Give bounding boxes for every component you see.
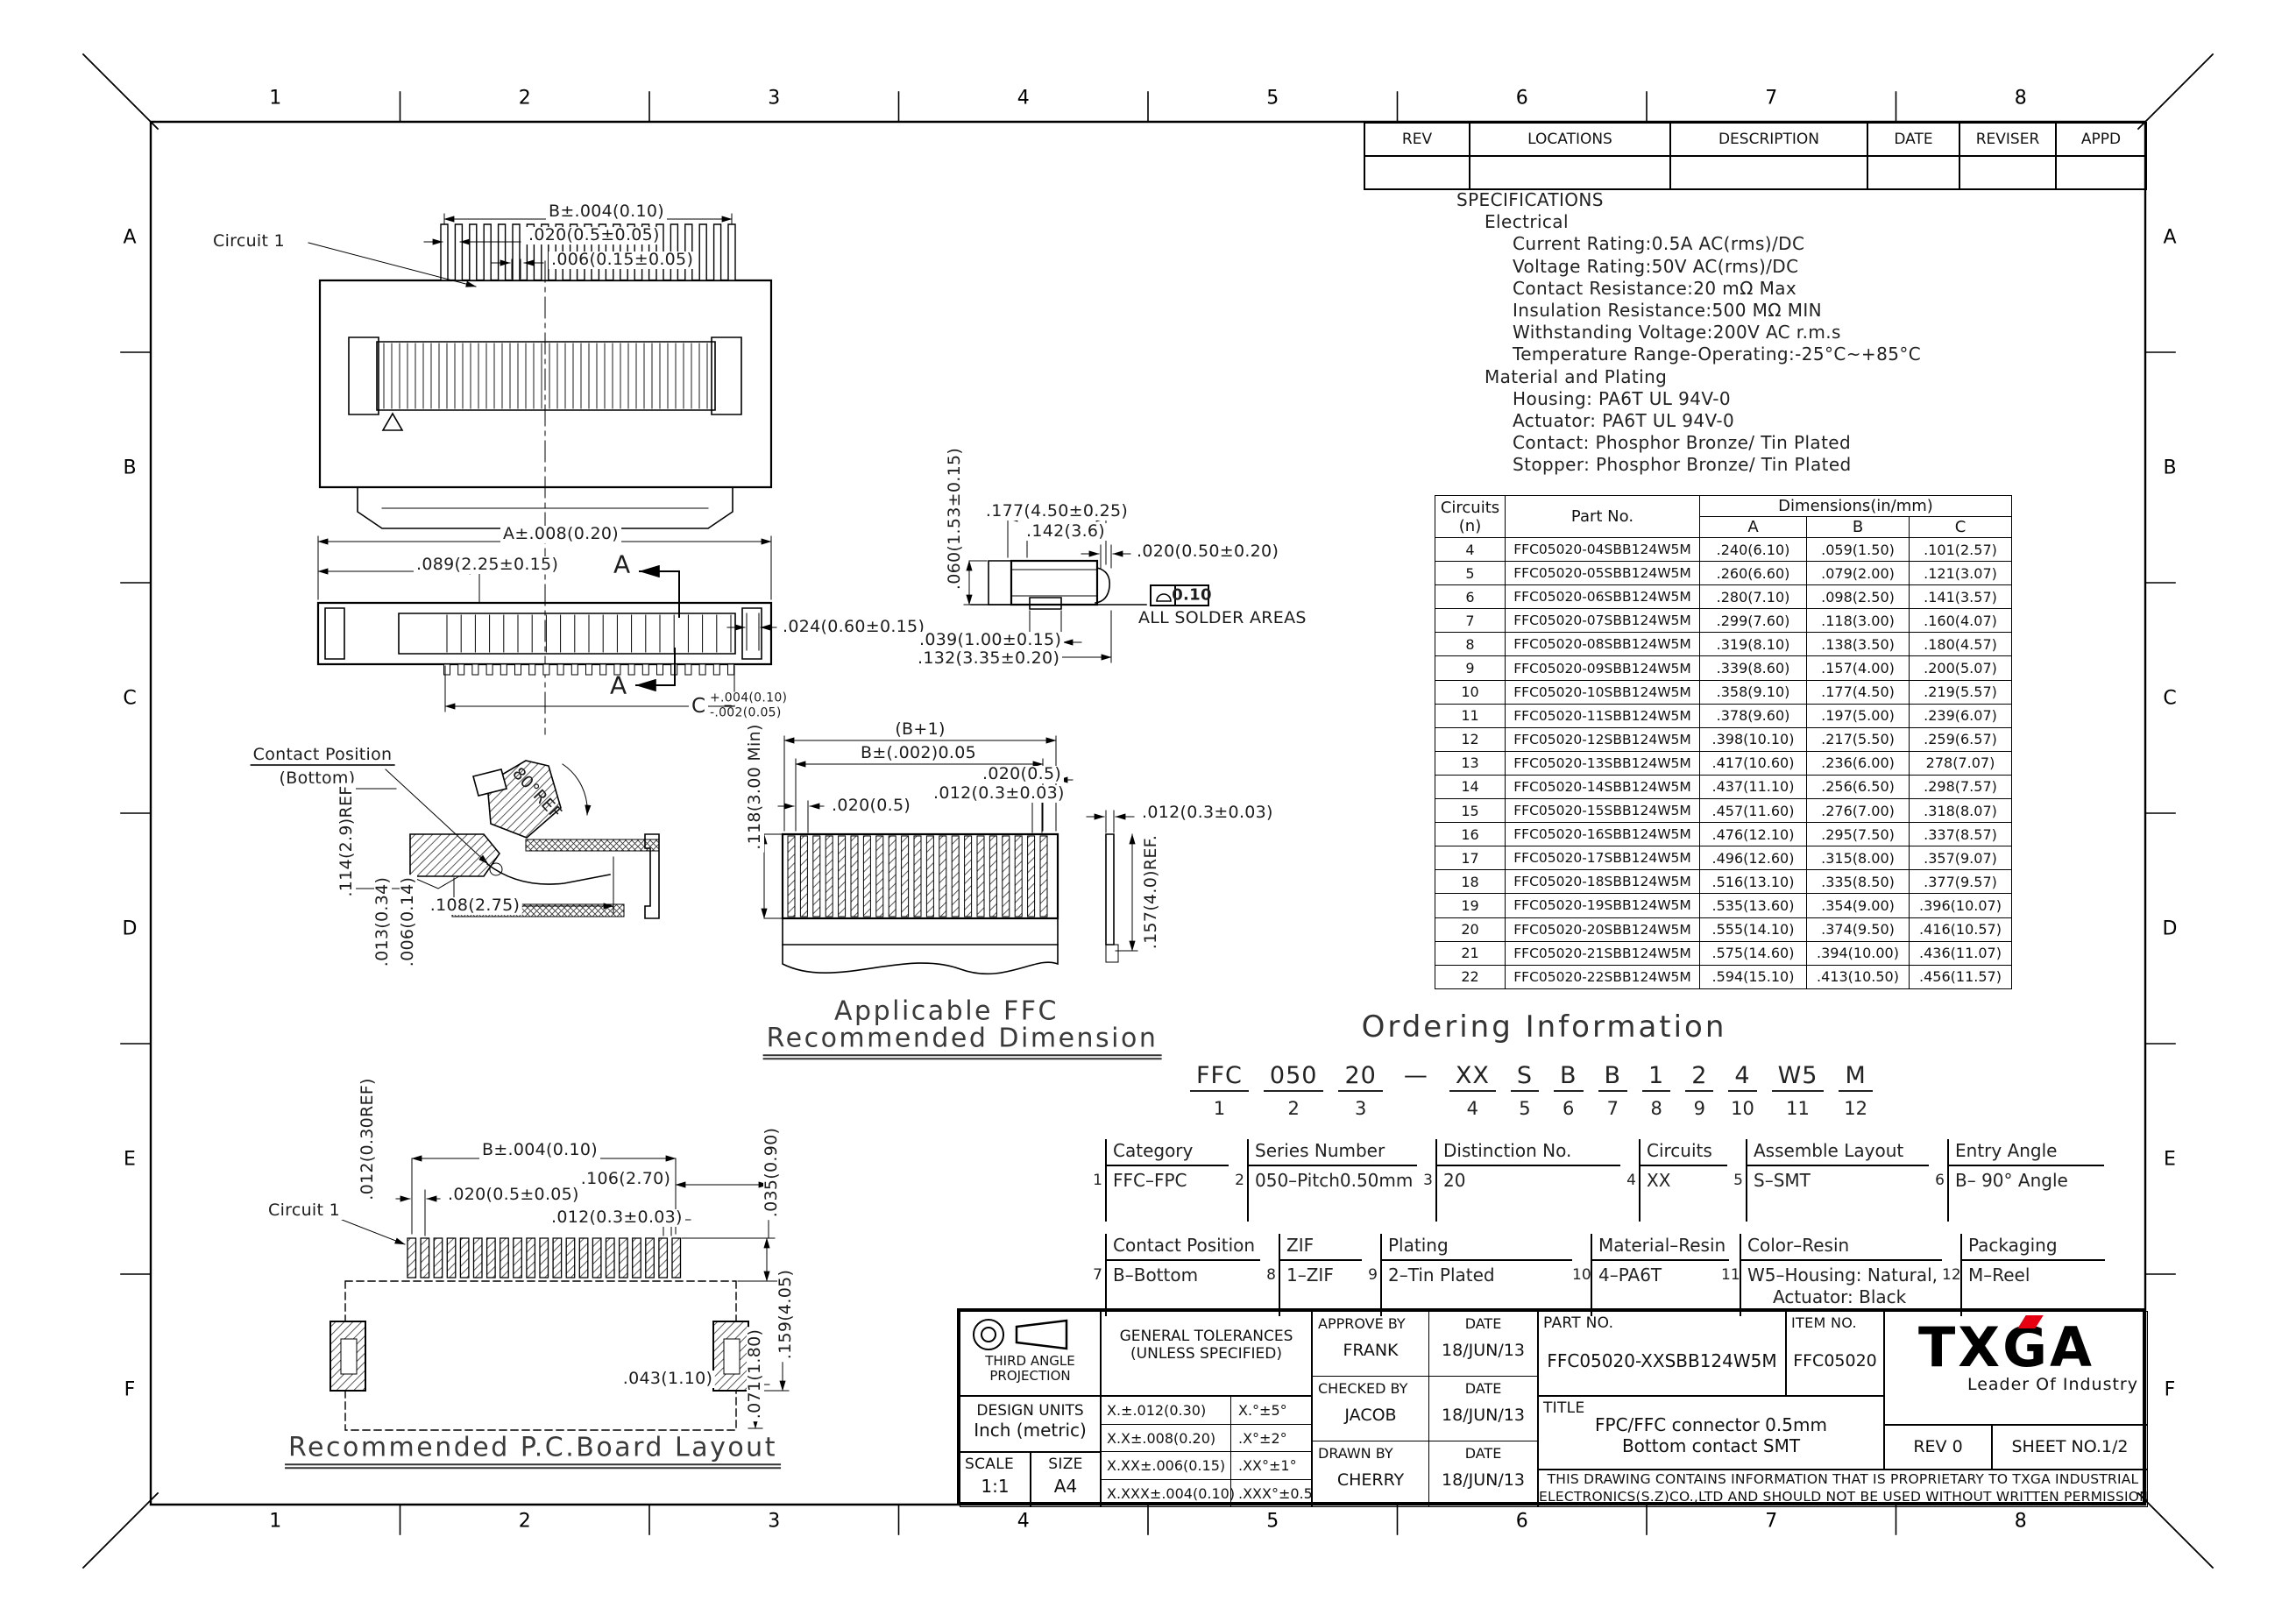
tolerances-title-1: GENERAL TOLERANCES [1102,1328,1311,1345]
grid-row-right-B: B [2163,457,2176,478]
col-header-dimensions: Dimensions(in/mm) [1700,496,2012,517]
grid-col-top-4: 4 [1017,88,1030,110]
dim-topview-pitch: .020(0.5±0.05) [526,227,663,244]
circuits-cell: .416(10.57) [1910,917,2012,941]
circuits-cell: FFC05020-04SBB124W5M [1506,538,1700,562]
dim-ffc-exposed-length: .118(3.00 Min) [747,721,764,852]
circuits-cell: .456(11.57) [1910,965,2012,988]
dim-ffc-thickness: .012(0.3±0.03) [1139,804,1276,822]
circuits-table-row: 11FFC05020-11SBB124W5M.378(9.60).197(5.0… [1435,704,2012,727]
ordering-legend-item-5: 5Assemble LayoutS–SMT [1727,1139,1929,1222]
ordering-code-segment: S5 [1511,1062,1539,1119]
circuits-cell: 10 [1435,680,1506,704]
circuits-cell: FFC05020-20SBB124W5M [1506,917,1700,941]
grid-col-top-1: 1 [269,88,281,110]
circuits-cell: .098(2.50) [1807,585,1910,609]
spec-line: SPECIFICATIONS [1456,189,2017,211]
ordering-legend-item-9: 9Plating2–Tin Plated [1362,1234,1572,1316]
circuits-cell: .394(10.00) [1807,941,1910,965]
dim-ffc-trace-width: .012(0.3±0.03) [931,785,1067,803]
proprietary-line-1: THIS DRAWING CONTAINS INFORMATION THAT I… [1539,1470,2147,1488]
circuits-table-row: 6FFC05020-06SBB124W5M.280(7.10).098(2.50… [1435,585,2012,609]
approvals-cell: APPROVE BYFRANKDATE18/JUN/13CHECKED BYJA… [1312,1311,1538,1507]
circuits-cell: .239(6.07) [1910,704,2012,727]
ordering-code-segment: 0502 [1264,1062,1324,1119]
grid-col-top-3: 3 [768,88,780,110]
circuits-cell: FFC05020-12SBB124W5M [1506,727,1700,751]
circuits-cell: 19 [1435,894,1506,917]
rev-col-reviser: REVISER [1959,123,2056,156]
ordering-code-segment: XX4 [1449,1062,1496,1119]
spec-line: Insulation Resistance:500 MΩ MIN [1456,300,2017,322]
title-pcb-layout: Recommended P.C.Board Layout [285,1434,781,1469]
grid-col-top-7: 7 [1765,88,1777,110]
ordering-legend-item-10: 10Material–Resin4–PA6T [1572,1234,1721,1316]
circuits-table-row: 18FFC05020-18SBB124W5M.516(13.10).335(8.… [1435,870,2012,894]
dim-sideview-height: .060(1.53±0.15) [946,445,964,592]
rev-col-locations: LOCATIONS [1470,123,1670,156]
circuits-cell: .337(8.57) [1910,823,2012,846]
grid-col-bottom-3: 3 [768,1511,780,1533]
circuits-cell: .259(6.57) [1910,727,2012,751]
circuits-cell: .298(7.57) [1910,775,2012,798]
ordering-code-segment: B7 [1598,1062,1628,1119]
part-no-cell: PART NO. FFC05020-XXSBB124W5M [1538,1311,1786,1396]
circuits-cell: .396(10.07) [1910,894,2012,917]
circuits-cell: .141(3.57) [1910,585,2012,609]
circuits-cell: .276(7.00) [1807,799,1910,823]
circuits-cell: .315(8.00) [1807,846,1910,870]
circuits-cell: FFC05020-15SBB124W5M [1506,799,1700,823]
col-header-part-no: Part No. [1506,496,1700,538]
approval-row-cherry: DRAWN BYCHERRYDATE18/JUN/13 [1313,1441,1537,1506]
spec-line: Contact Resistance:20 mΩ Max [1456,278,2017,300]
dim-sideview-tail: .020(0.50±0.20) [1134,543,1281,561]
grid-row-left-E: E [124,1148,136,1170]
circuits-cell: .319(8.10) [1700,633,1807,656]
rev-cell: REV 0 [1884,1425,1992,1470]
grid-row-right-D: D [2163,917,2178,939]
dim-ffc-overall: (B+1) [892,721,947,739]
ordering-legend-row-2: 7Contact PositionB–Bottom8ZIF1–ZIF9Plati… [1087,1234,2105,1316]
circuits-table-row: 13FFC05020-13SBB124W5M.417(10.60).236(6.… [1435,751,2012,775]
design-units-value: Inch (metric) [960,1420,1100,1441]
circuits-table-row: 14FFC05020-14SBB124W5M.437(11.10).256(6.… [1435,775,2012,798]
dim-topview-span-b: B±.004(0.10) [546,203,667,221]
dim-ffc-pitch: .020(0.5) [829,797,913,815]
logo-cell: TXGA Leader Of Industry [1884,1311,2148,1425]
label-section-a-top: A [613,551,630,577]
general-tolerances-cell: GENERAL TOLERANCES (UNLESS SPECIFIED) [1101,1311,1312,1396]
circuits-cell: .295(7.50) [1807,823,1910,846]
grid-row-right-A: A [2163,226,2176,248]
rev-col-rev: REV [1364,123,1470,156]
revision-table-empty-row [1364,156,2146,189]
approval-row-frank: APPROVE BYFRANKDATE18/JUN/13 [1313,1312,1537,1377]
circuits-cell: .299(7.60) [1700,609,1807,633]
circuits-table-row: 7FFC05020-07SBB124W5M.299(7.60).118(3.00… [1435,609,2012,633]
circuits-cell: FFC05020-05SBB124W5M [1506,562,1700,585]
dim-ffc-stiffener-ref: .157(4.0)REF. [1143,832,1160,952]
dim-contact-006: .006(0.14) [400,875,417,969]
ordering-code-segment: B6 [1554,1062,1584,1119]
grid-col-bottom-7: 7 [1765,1511,1777,1533]
dim-frontview-pin-length: .024(0.60±0.15) [780,619,927,636]
circuits-cell: FFC05020-11SBB124W5M [1506,704,1700,727]
circuits-cell: 14 [1435,775,1506,798]
grid-col-bottom-4: 4 [1017,1511,1030,1533]
grid-col-bottom-5: 5 [1266,1511,1279,1533]
projection-cone-icon [1015,1319,1069,1350]
design-units-cell: DESIGN UNITS Inch (metric) [960,1396,1101,1452]
size-value: A4 [1031,1476,1100,1497]
grid-row-left-B: B [123,457,136,478]
scale-value: 1:1 [960,1476,1030,1497]
spec-line: Voltage Rating:50V AC(rms)/DC [1456,256,2017,278]
circuits-table-row: 5FFC05020-05SBB124W5M.260(6.60).079(2.00… [1435,562,2012,585]
sheet-no-cell: SHEET NO.1/2 [1992,1425,2148,1470]
grid-row-left-A: A [123,226,136,248]
view-ffc [783,834,1118,974]
specifications-block: SPECIFICATIONSElectricalCurrent Rating:0… [1456,189,2017,477]
dim-pcb-106: .106(2.70) [578,1171,673,1188]
label-topview-circuit-1: Circuit 1 [210,233,287,251]
circuits-cell: .417(10.60) [1700,751,1807,775]
dim-pcb-071: .071(1.80) [747,1327,764,1421]
dim-frontview-c-tol-plus: +.004(0.10) [707,692,790,705]
ordering-code-segment: 29 [1685,1062,1713,1119]
rev-col-description: DESCRIPTION [1670,123,1867,156]
circuits-cell: FFC05020-06SBB124W5M [1506,585,1700,609]
circuits-cell: .138(3.50) [1807,633,1910,656]
circuits-cell: FFC05020-22SBB124W5M [1506,965,1700,988]
ordering-code-segment: 410 [1728,1062,1756,1119]
txga-logo: TXGA [1918,1321,2147,1375]
circuits-cell: .157(4.00) [1807,656,1910,680]
sheet-no-value: SHEET NO.1/2 [1993,1437,2147,1456]
circuits-cell: .240(6.10) [1700,538,1807,562]
circuits-cell: 5 [1435,562,1506,585]
spec-line: Current Rating:0.5A AC(rms)/DC [1456,233,2017,255]
view-pcb [330,1238,748,1430]
grid-row-right-F: F [2165,1378,2176,1400]
circuits-table-row: 4FFC05020-04SBB124W5M.240(6.10).059(1.50… [1435,538,2012,562]
circuits-cell: .200(5.07) [1910,656,2012,680]
circuits-cell: 9 [1435,656,1506,680]
ordering-code-segment: — [1398,1062,1435,1096]
grid-col-bottom-2: 2 [519,1511,531,1533]
circuits-cell: .457(11.60) [1700,799,1807,823]
circuits-cell: .575(14.60) [1700,941,1807,965]
tolerance-row: X.XXX±.004(0.10).XXX°±0.5° [1102,1480,1311,1507]
col-header-circuits: Circuits (n) [1435,496,1506,538]
circuits-cell: .217(5.50) [1807,727,1910,751]
approval-row-jacob: CHECKED BYJACOBDATE18/JUN/13 [1313,1377,1537,1441]
dim-sub-col-a: A [1700,517,1807,538]
circuits-cell: .476(12.10) [1700,823,1807,846]
grid-col-bottom-6: 6 [1516,1511,1528,1533]
grid-col-top-5: 5 [1266,88,1279,110]
dim-sideview-142: .142(3.6) [1024,523,1108,541]
spec-line: Temperature Range-Operating:-25°C~+85°C [1456,344,2017,365]
circuits-cell: .535(13.60) [1700,894,1807,917]
ordering-legend-item-2: 2Series Number050–Pitch0.50mm [1229,1139,1417,1222]
circuits-cell: .079(2.00) [1807,562,1910,585]
grid-col-bottom-8: 8 [2015,1511,2027,1533]
ordering-code-segment: 203 [1338,1062,1382,1119]
tolerance-row: X.±.012(0.30)X.°±5° [1102,1397,1311,1425]
title-block: THIRD ANGLE PROJECTION DESIGN UNITS Inch… [957,1308,2145,1505]
circuits-cell: 22 [1435,965,1506,988]
third-angle-projection-cell: THIRD ANGLE PROJECTION [960,1311,1101,1396]
grid-row-left-D: D [123,917,138,939]
engineering-drawing-sheet: { "sheet": { "grid_columns": ["1","2","3… [0,0,2296,1622]
ordering-legend-item-1: 1CategoryFFC–FPC [1087,1139,1229,1222]
item-no-cell: ITEM NO. FFC05020 [1786,1311,1884,1396]
dim-sub-col-b: B [1807,517,1910,538]
circuits-table-row: 22FFC05020-22SBB124W5M.594(15.10).413(10… [1435,965,2012,988]
rev-empty-cell [1670,156,1867,189]
circuits-cell: 278(7.07) [1910,751,2012,775]
rev-empty-cell [1470,156,1670,189]
label-contact-position: Contact Position [251,747,395,766]
ordering-legend-item-11: 11Color–ResinW5–Housing: Natural,Actuato… [1721,1234,1942,1316]
dim-contact-108: .108(2.75) [428,897,522,915]
circuits-cell: .398(10.10) [1700,727,1807,751]
circuits-cell: FFC05020-09SBB124W5M [1506,656,1700,680]
circuits-dimension-table: Circuits (n) Part No. Dimensions(in/mm) … [1435,495,2012,989]
circuits-cell: .354(9.00) [1807,894,1910,917]
revision-table: REVLOCATIONSDESCRIPTIONDATEREVISERAPPD [1364,122,2147,190]
size-label: SIZE [1031,1453,1100,1476]
dim-contact-013: .013(0.34) [374,875,392,969]
rev-empty-cell [2056,156,2146,189]
circuits-cell: .177(4.50) [1807,680,1910,704]
ordering-legend-item-4: 4CircuitsXX [1620,1139,1727,1222]
circuits-cell: .280(7.10) [1700,585,1807,609]
grid-col-top-8: 8 [2015,88,2027,110]
circuits-cell: .555(14.10) [1700,917,1807,941]
dim-frontview-end-width: .089(2.25±0.15) [414,556,561,574]
scale-cell: SCALE 1:1 [960,1452,1031,1507]
ordering-legend-row-1: 1CategoryFFC–FPC2Series Number050–Pitch0… [1087,1139,2104,1222]
drawing-title-line-2: Bottom contact SMT [1539,1435,1883,1456]
ordering-legend-item-3: 3Distinction No.20 [1417,1139,1620,1222]
circuits-cell: .121(3.07) [1910,562,2012,585]
circuits-cell: .339(8.60) [1700,656,1807,680]
size-cell: SIZE A4 [1031,1452,1101,1507]
dim-pcb-span-b: B±.004(0.10) [479,1142,600,1159]
circuits-cell: FFC05020-13SBB124W5M [1506,751,1700,775]
dim-pcb-offset-ref: .012(0.30REF) [359,1075,377,1202]
spec-line: Contact: Phosphor Bronze/ Tin Plated [1456,432,2017,454]
circuits-cell: .118(3.00) [1807,609,1910,633]
circuits-cell: .357(9.07) [1910,846,2012,870]
circuits-table-row: 9FFC05020-09SBB124W5M.339(8.60).157(4.00… [1435,656,2012,680]
spec-line: Withstanding Voltage:200V AC r.m.s [1456,322,2017,344]
circuits-cell: 18 [1435,870,1506,894]
part-no-value: FFC05020-XXSBB124W5M [1539,1350,1785,1371]
ordering-code-segment: W511 [1772,1062,1825,1119]
grid-row-right-E: E [2164,1148,2176,1170]
dim-sub-col-c: C [1910,517,2012,538]
ordering-code: FFC10502203—XX4S5B6B71829410W511M12 [1190,1062,1873,1119]
dim-sideview-base: .132(3.35±0.20) [915,650,1062,668]
circuits-cell: .413(10.50) [1807,965,1910,988]
ordering-legend-item-8: 8ZIF1–ZIF [1260,1234,1362,1316]
ordering-code-segment: 18 [1642,1062,1670,1119]
circuits-cell: .516(13.10) [1700,870,1807,894]
label-section-a-bottom: A [610,672,627,698]
circuits-cell: .059(1.50) [1807,538,1910,562]
dim-sideview-foot: .039(1.00±0.15) [917,632,1064,649]
circuits-cell: .197(5.00) [1807,704,1910,727]
dim-ffc-end-margin: .020(0.5) [980,766,1064,783]
dim-pcb-pitch: .020(0.5±0.05) [445,1186,582,1204]
circuits-cell: 20 [1435,917,1506,941]
scale-label: SCALE [960,1453,1030,1476]
circuits-cell: .436(11.07) [1910,941,2012,965]
dim-frontview-width-a: A±.008(0.20) [500,526,621,543]
circuits-cell: 21 [1435,941,1506,965]
rev-empty-cell [1959,156,2056,189]
dim-sideview-depth: .177(4.50±0.25) [983,503,1130,521]
dim-frontview-c: C [689,696,708,717]
circuits-cell: .236(6.00) [1807,751,1910,775]
circuits-cell: FFC05020-14SBB124W5M [1506,775,1700,798]
circuits-cell: 13 [1435,751,1506,775]
item-no-value: FFC05020 [1787,1351,1883,1371]
dim-topview-pin-width: .006(0.15±0.05) [549,251,696,269]
circuits-cell: FFC05020-07SBB124W5M [1506,609,1700,633]
circuits-cell: 17 [1435,846,1506,870]
label-all-solder-areas: ALL SOLDER AREAS [1136,610,1309,627]
circuits-table-row: 17FFC05020-17SBB124W5M.496(12.60).315(8.… [1435,846,2012,870]
spec-line: Material and Plating [1456,366,2017,388]
rev-empty-cell [1364,156,1470,189]
dim-contact-height-ref: .114(2.9)REF [338,783,356,899]
third-angle-label-1: THIRD ANGLE [960,1354,1100,1369]
title-recommended-dimension: Recommended Dimension [763,1024,1162,1059]
value-flatness-tolerance: 0.10 [1172,588,1212,605]
grid-col-top-6: 6 [1516,88,1528,110]
grid-col-top-2: 2 [519,88,531,110]
spec-line: Actuator: PA6T UL 94V-0 [1456,410,2017,432]
circuits-table-row: 15FFC05020-15SBB124W5M.457(11.60).276(7.… [1435,799,2012,823]
dim-ffc-span-b: B±(.002)0.05 [858,745,979,762]
rev-value: REV 0 [1885,1437,1991,1456]
circuits-cell: FFC05020-17SBB124W5M [1506,846,1700,870]
part-no-label: PART NO. [1539,1312,1785,1335]
circuits-cell: .260(6.60) [1700,562,1807,585]
circuits-cell: FFC05020-19SBB124W5M [1506,894,1700,917]
circuits-cell: .101(2.57) [1910,538,2012,562]
circuits-cell: .219(5.57) [1910,680,2012,704]
circuits-table-row: 19FFC05020-19SBB124W5M.535(13.60).354(9.… [1435,894,2012,917]
circuits-table-row: 8FFC05020-08SBB124W5M.319(8.10).138(3.50… [1435,633,2012,656]
proprietary-notice-cell: THIS DRAWING CONTAINS INFORMATION THAT I… [1538,1470,2148,1507]
circuits-cell: 4 [1435,538,1506,562]
circuits-table-row: 10FFC05020-10SBB124W5M.358(9.10).177(4.5… [1435,680,2012,704]
grid-col-bottom-1: 1 [269,1511,281,1533]
circuits-cell: 8 [1435,633,1506,656]
ordering-legend-item-6: 6Entry AngleB– 90° Angle [1929,1139,2104,1222]
circuits-cell: FFC05020-08SBB124W5M [1506,633,1700,656]
rev-empty-cell [1867,156,1959,189]
design-units-label: DESIGN UNITS [960,1402,1100,1420]
grid-row-left-F: F [124,1378,136,1400]
third-angle-label-2: PROJECTION [960,1369,1100,1384]
circuits-cell: .377(9.57) [1910,870,2012,894]
projection-circle-icon [973,1319,1004,1350]
circuits-cell: .358(9.10) [1700,680,1807,704]
circuits-cell: .437(11.10) [1700,775,1807,798]
circuits-cell: 6 [1435,585,1506,609]
revision-table-header: REVLOCATIONSDESCRIPTIONDATEREVISERAPPD [1364,123,2146,156]
circuits-table-row: 12FFC05020-12SBB124W5M.398(10.10).217(5.… [1435,727,2012,751]
circuits-cell: .160(4.07) [1910,609,2012,633]
circuits-cell: FFC05020-21SBB124W5M [1506,941,1700,965]
ordering-information-title: Ordering Information [1362,1009,1727,1045]
circuits-cell: .318(8.07) [1910,799,2012,823]
dim-pcb-pad-width: .012(0.3±0.03) [549,1209,685,1227]
spec-line: Stopper: Phosphor Bronze/ Tin Plated [1456,454,2017,476]
circuits-cell: FFC05020-10SBB124W5M [1506,680,1700,704]
circuits-cell: .496(12.60) [1700,846,1807,870]
spec-line: Electrical [1456,211,2017,233]
circuits-table-row: 21FFC05020-21SBB124W5M.575(14.60).394(10… [1435,941,2012,965]
dim-frontview-c-tol-minus: -.002(0.05) [707,707,784,720]
item-no-label: ITEM NO. [1787,1312,1883,1334]
grid-row-right-C: C [2163,687,2176,709]
dim-pcb-035: .035(0.90) [763,1125,781,1220]
circuits-table-row: 20FFC05020-20SBB124W5M.555(14.10).374(9.… [1435,917,2012,941]
circuits-cell: 7 [1435,609,1506,633]
label-pcb-circuit-1: Circuit 1 [266,1202,343,1220]
circuits-cell: .180(4.57) [1910,633,2012,656]
tolerance-row: X.XX±.006(0.15).XX°±1° [1102,1452,1311,1480]
circuits-cell: .335(8.50) [1807,870,1910,894]
circuits-cell: 11 [1435,704,1506,727]
proprietary-line-2: ELECTRONICS(S.Z)CO.,LTD AND SHOULD NOT B… [1539,1488,2147,1505]
circuits-cell: FFC05020-16SBB124W5M [1506,823,1700,846]
tolerance-row: X.X±.008(0.20).X°±2° [1102,1425,1311,1453]
circuits-cell: 16 [1435,823,1506,846]
grid-row-left-C: C [123,687,136,709]
rev-col-date: DATE [1867,123,1959,156]
ordering-code-segment: FFC1 [1190,1062,1249,1119]
tolerance-values-cell: X.±.012(0.30)X.°±5°X.X±.008(0.20).X°±2°X… [1101,1396,1312,1507]
dim-pcb-159: .159(4.05) [777,1267,795,1362]
view-top [320,224,771,734]
rev-col-appd: APPD [2056,123,2146,156]
ordering-code-segment: M12 [1839,1062,1872,1119]
spec-line: Housing: PA6T UL 94V-0 [1456,388,2017,410]
circuits-cell: .256(6.50) [1807,775,1910,798]
tolerances-title-2: (UNLESS SPECIFIED) [1102,1345,1311,1363]
dim-pcb-043: .043(1.10) [620,1371,715,1388]
circuits-cell: 15 [1435,799,1506,823]
ordering-legend-item-12: 12PackagingM–Reel [1942,1234,2105,1316]
circuits-cell: .374(9.50) [1807,917,1910,941]
circuits-cell: .594(15.10) [1700,965,1807,988]
circuits-cell: FFC05020-18SBB124W5M [1506,870,1700,894]
ordering-legend-item-7: 7Contact PositionB–Bottom [1087,1234,1260,1316]
drawing-title-line-1: FPC/FFC connector 0.5mm [1539,1414,1883,1435]
title-cell: TITLE FPC/FFC connector 0.5mm Bottom con… [1538,1396,1884,1470]
circuits-cell: .378(9.60) [1700,704,1807,727]
circuits-cell: 12 [1435,727,1506,751]
